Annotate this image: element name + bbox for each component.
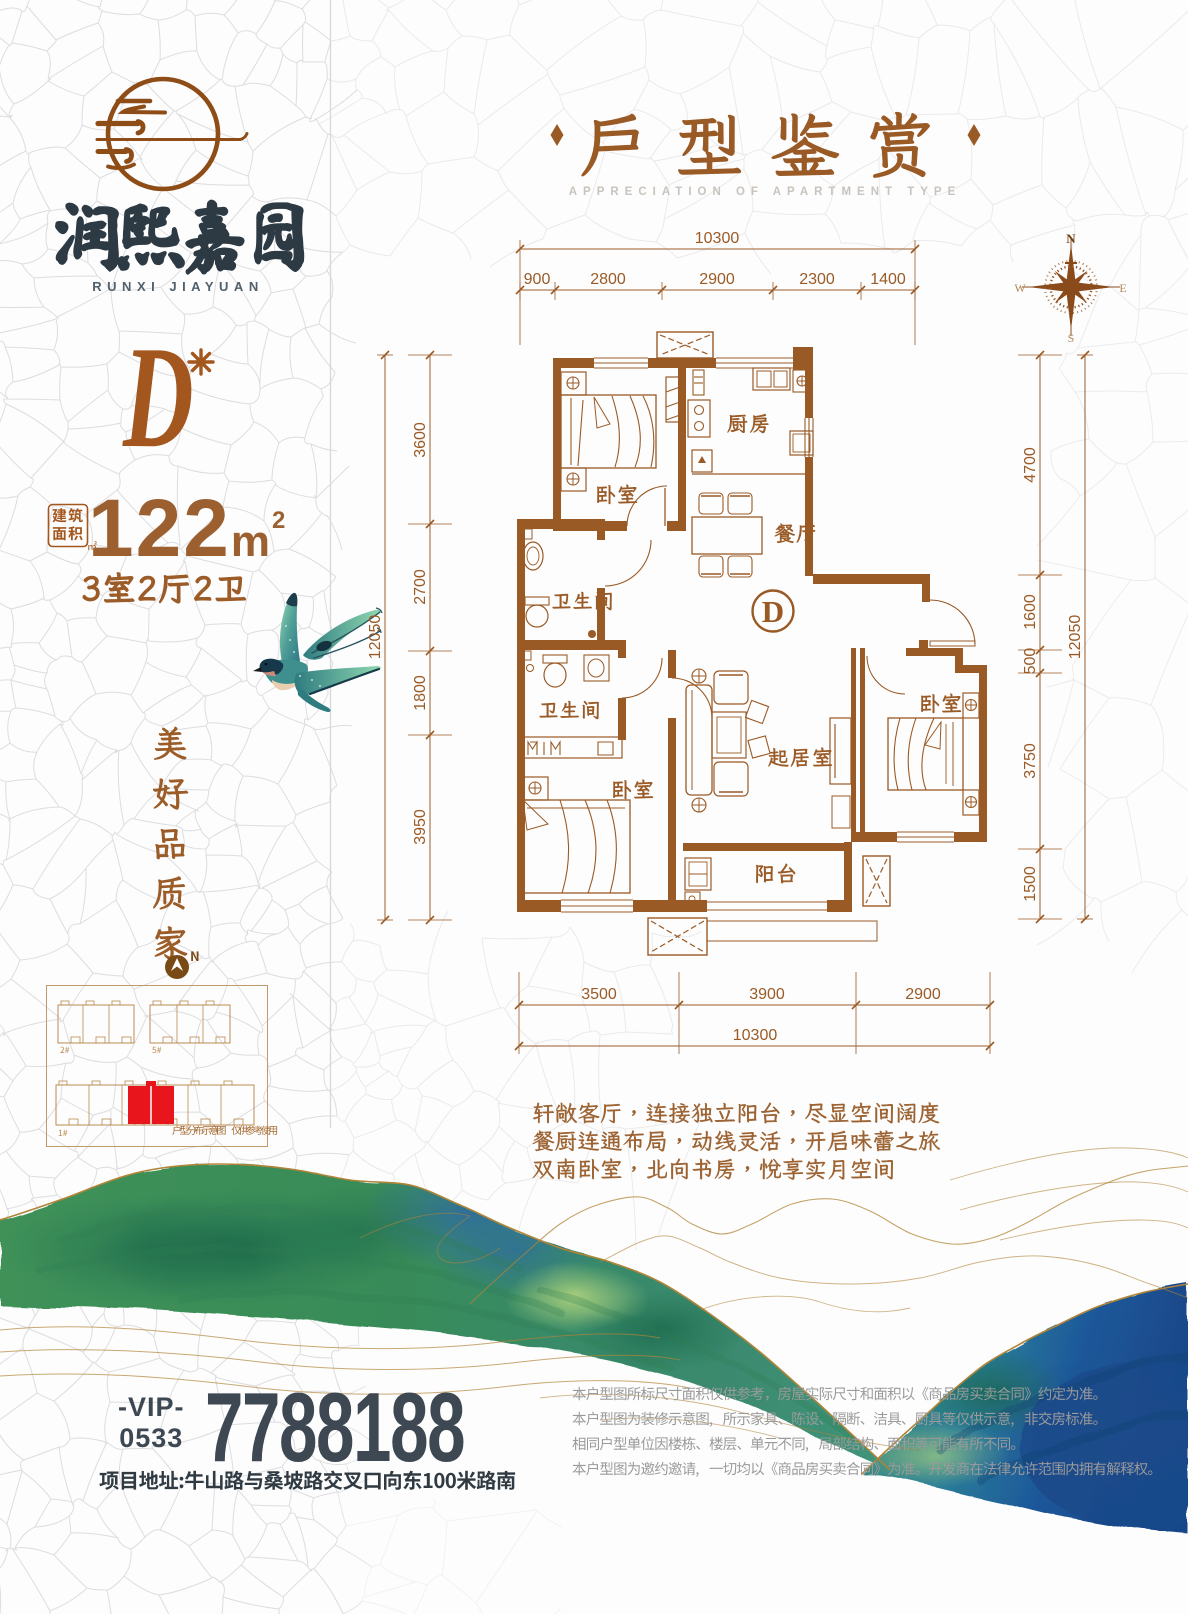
svg-text:1800: 1800 [412,675,429,711]
svg-text:1400: 1400 [870,271,906,288]
svg-text:N: N [1066,231,1076,246]
svg-text:4700: 4700 [1022,447,1039,483]
svg-text:2900: 2900 [905,986,941,1003]
svg-text:10300: 10300 [695,230,740,247]
svg-text:S: S [1068,331,1075,345]
svg-text:3750: 3750 [1022,743,1039,779]
svg-text:D: D [122,316,193,478]
svg-text:W: W [1014,281,1026,295]
svg-text:D: D [762,594,784,629]
svg-text:2800: 2800 [590,271,626,288]
svg-text:12050: 12050 [1067,615,1084,660]
svg-text:900: 900 [524,271,551,288]
svg-text:10300: 10300 [733,1027,778,1044]
svg-text:500: 500 [1022,648,1039,675]
svg-text:3600: 3600 [412,422,429,458]
svg-text:12050: 12050 [367,615,384,660]
svg-text:3950: 3950 [412,809,429,845]
svg-text:2700: 2700 [412,569,429,605]
svg-text:2300: 2300 [799,271,835,288]
svg-text:1600: 1600 [1022,594,1039,630]
svg-text:3500: 3500 [581,986,617,1003]
svg-text:2900: 2900 [699,271,735,288]
svg-text:E: E [1119,281,1126,295]
svg-text:3900: 3900 [749,986,785,1003]
svg-text:1500: 1500 [1022,866,1039,902]
